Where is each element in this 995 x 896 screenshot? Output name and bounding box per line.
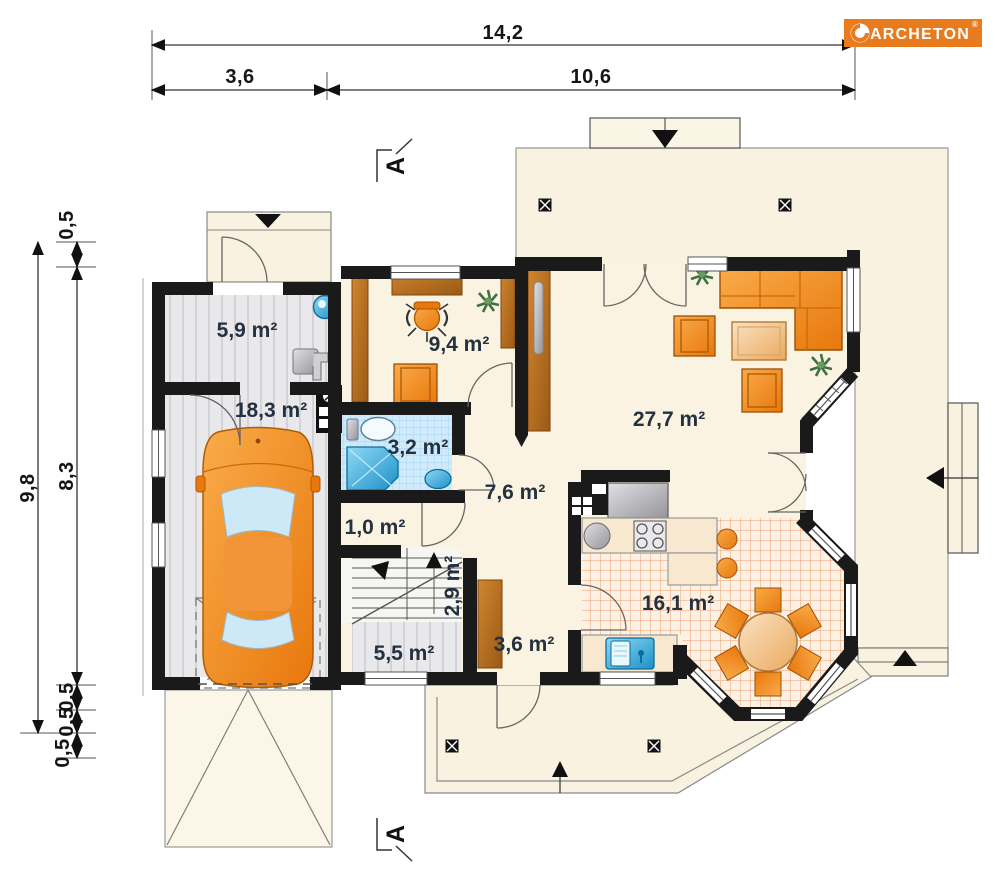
section-marker-bottom: A bbox=[377, 818, 412, 861]
logo-text: ARCHETON bbox=[870, 26, 970, 43]
terrace-column bbox=[648, 740, 661, 753]
room-label-closet: 1,0 m² bbox=[345, 516, 406, 539]
dim-overall-height: 9,8 bbox=[17, 473, 39, 502]
dimensions-left: 9,8 0,5 8,3 0,5 0,5 0,5 bbox=[17, 210, 96, 767]
study-cabinet-icon bbox=[501, 268, 515, 348]
chimney-flue-kitchen bbox=[568, 482, 608, 515]
dim-seg-b2: 0,5 bbox=[56, 707, 78, 736]
window bbox=[152, 430, 165, 477]
dim-overall-width: 14,2 bbox=[483, 22, 524, 44]
room-label-hall: 7,6 m² bbox=[485, 481, 546, 504]
kitchen-counter bbox=[668, 553, 717, 585]
dim-right-span: 10,6 bbox=[571, 66, 612, 88]
dim-seg-main: 8,3 bbox=[56, 461, 78, 490]
window bbox=[152, 523, 165, 567]
car-icon bbox=[196, 428, 320, 689]
study-armchair-icon bbox=[394, 364, 437, 406]
logo-registered: ® bbox=[972, 20, 978, 29]
dim-left-span: 3,6 bbox=[225, 66, 254, 88]
dim-seg-top: 0,5 bbox=[56, 210, 78, 239]
dim-seg-b1: 0,5 bbox=[56, 682, 78, 711]
armchair-icon bbox=[742, 369, 782, 412]
room-label-study: 9,4 m² bbox=[429, 333, 490, 356]
fridge-icon bbox=[608, 483, 668, 518]
bar-stool-icon bbox=[717, 529, 737, 549]
window bbox=[365, 672, 427, 685]
terrace-column bbox=[779, 199, 792, 212]
section-marker-top: A bbox=[377, 139, 412, 182]
study-wardrobe-icon bbox=[352, 270, 368, 402]
terrace-column bbox=[539, 199, 552, 212]
svg-text:A: A bbox=[382, 157, 410, 175]
stove-icon bbox=[634, 521, 666, 551]
dim-seg-b3: 0,5 bbox=[52, 738, 74, 767]
room-label-garage: 18,3 m² bbox=[235, 399, 307, 422]
kitchen-sink-icon bbox=[606, 638, 654, 669]
window bbox=[391, 266, 460, 279]
window bbox=[847, 268, 860, 332]
room-label-utility: 5,9 m² bbox=[217, 319, 278, 342]
floor-plan-page: 5,9 m² 18,3 m² 9,4 m² 3,2 m² 7,6 m² 1,0 … bbox=[0, 0, 995, 896]
floor-plan-drawing: 5,9 m² 18,3 m² 9,4 m² 3,2 m² 7,6 m² 1,0 … bbox=[0, 0, 995, 896]
driveway bbox=[165, 690, 332, 847]
bar-stool-icon bbox=[717, 558, 737, 578]
room-label-bathroom: 3,2 m² bbox=[388, 436, 449, 459]
svg-text:A: A bbox=[382, 825, 410, 843]
armchair-icon bbox=[674, 316, 715, 356]
bath-sink-icon bbox=[425, 470, 451, 489]
brand-logo: ARCHETON ® bbox=[844, 19, 982, 47]
coffee-table-icon bbox=[732, 322, 786, 360]
pot-icon bbox=[584, 523, 610, 549]
hall-wardrobe-icon bbox=[528, 267, 550, 431]
window bbox=[600, 672, 655, 685]
room-label-stairs: 2,9 m² bbox=[441, 556, 464, 617]
room-label-wardrobe: 3,6 m² bbox=[494, 633, 555, 656]
terrace-column bbox=[446, 740, 459, 753]
dimensions-top: 14,2 3,6 10,6 bbox=[152, 22, 855, 100]
room-label-living: 27,7 m² bbox=[633, 408, 705, 431]
window bbox=[688, 257, 727, 271]
room-label-kitchen: 16,1 m² bbox=[642, 592, 714, 615]
room-label-storage: 5,5 m² bbox=[374, 642, 435, 665]
